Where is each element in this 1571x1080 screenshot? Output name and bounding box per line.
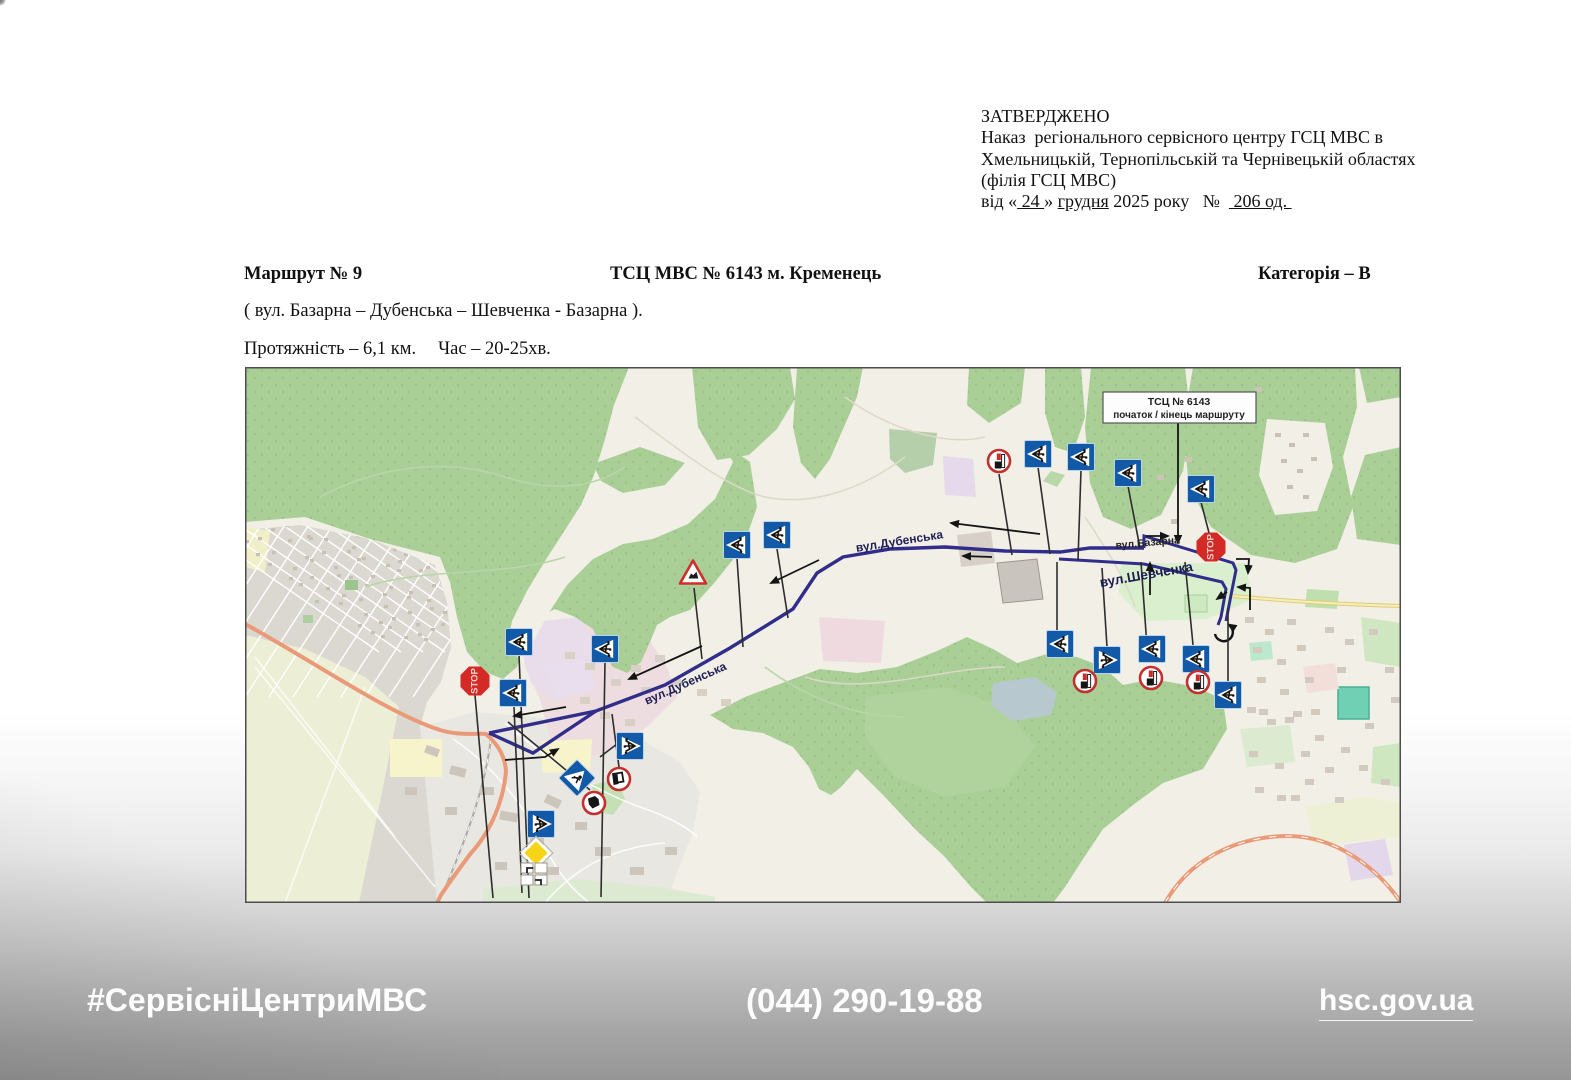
svg-text:ТСЦ № 6143: ТСЦ № 6143 bbox=[1148, 396, 1211, 408]
svg-text:початок / кінець маршруту: початок / кінець маршруту bbox=[1113, 410, 1245, 421]
